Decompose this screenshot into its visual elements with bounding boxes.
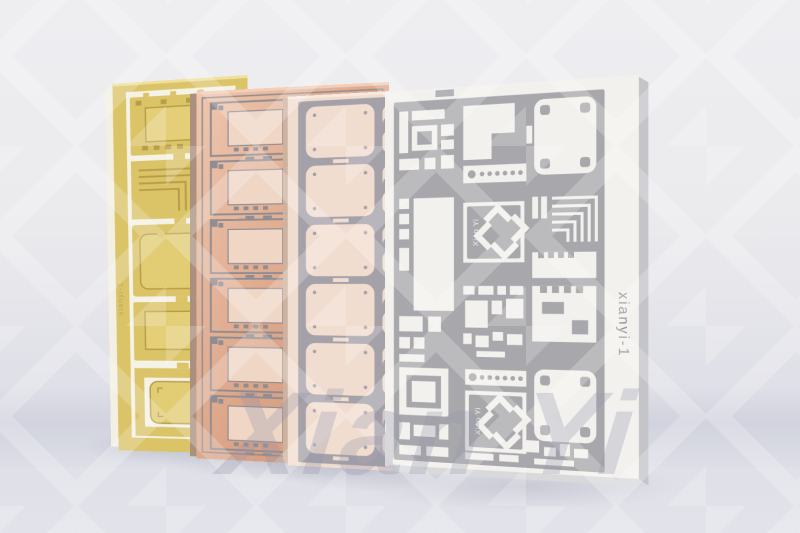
silver-serial-label: xianyi-1: [616, 292, 633, 358]
logo-text-bottom: Xian Yi: [473, 407, 482, 435]
studio-photo-canvas: xianyi-1: [0, 0, 800, 533]
gold-serial-label: xianyi-1: [115, 282, 125, 315]
xianyi-logo-block-top: Xian Yi: [463, 201, 528, 263]
silver-board-artwork: Xian Yi Xian Yi xianyi-1: [385, 74, 651, 492]
xianyi-logo-block-bottom: Xian Yi: [465, 390, 530, 454]
logo-text-top: Xian Yi: [471, 219, 480, 247]
pcb-panel-silver: Xian Yi Xian Yi xianyi-1: [385, 74, 651, 492]
